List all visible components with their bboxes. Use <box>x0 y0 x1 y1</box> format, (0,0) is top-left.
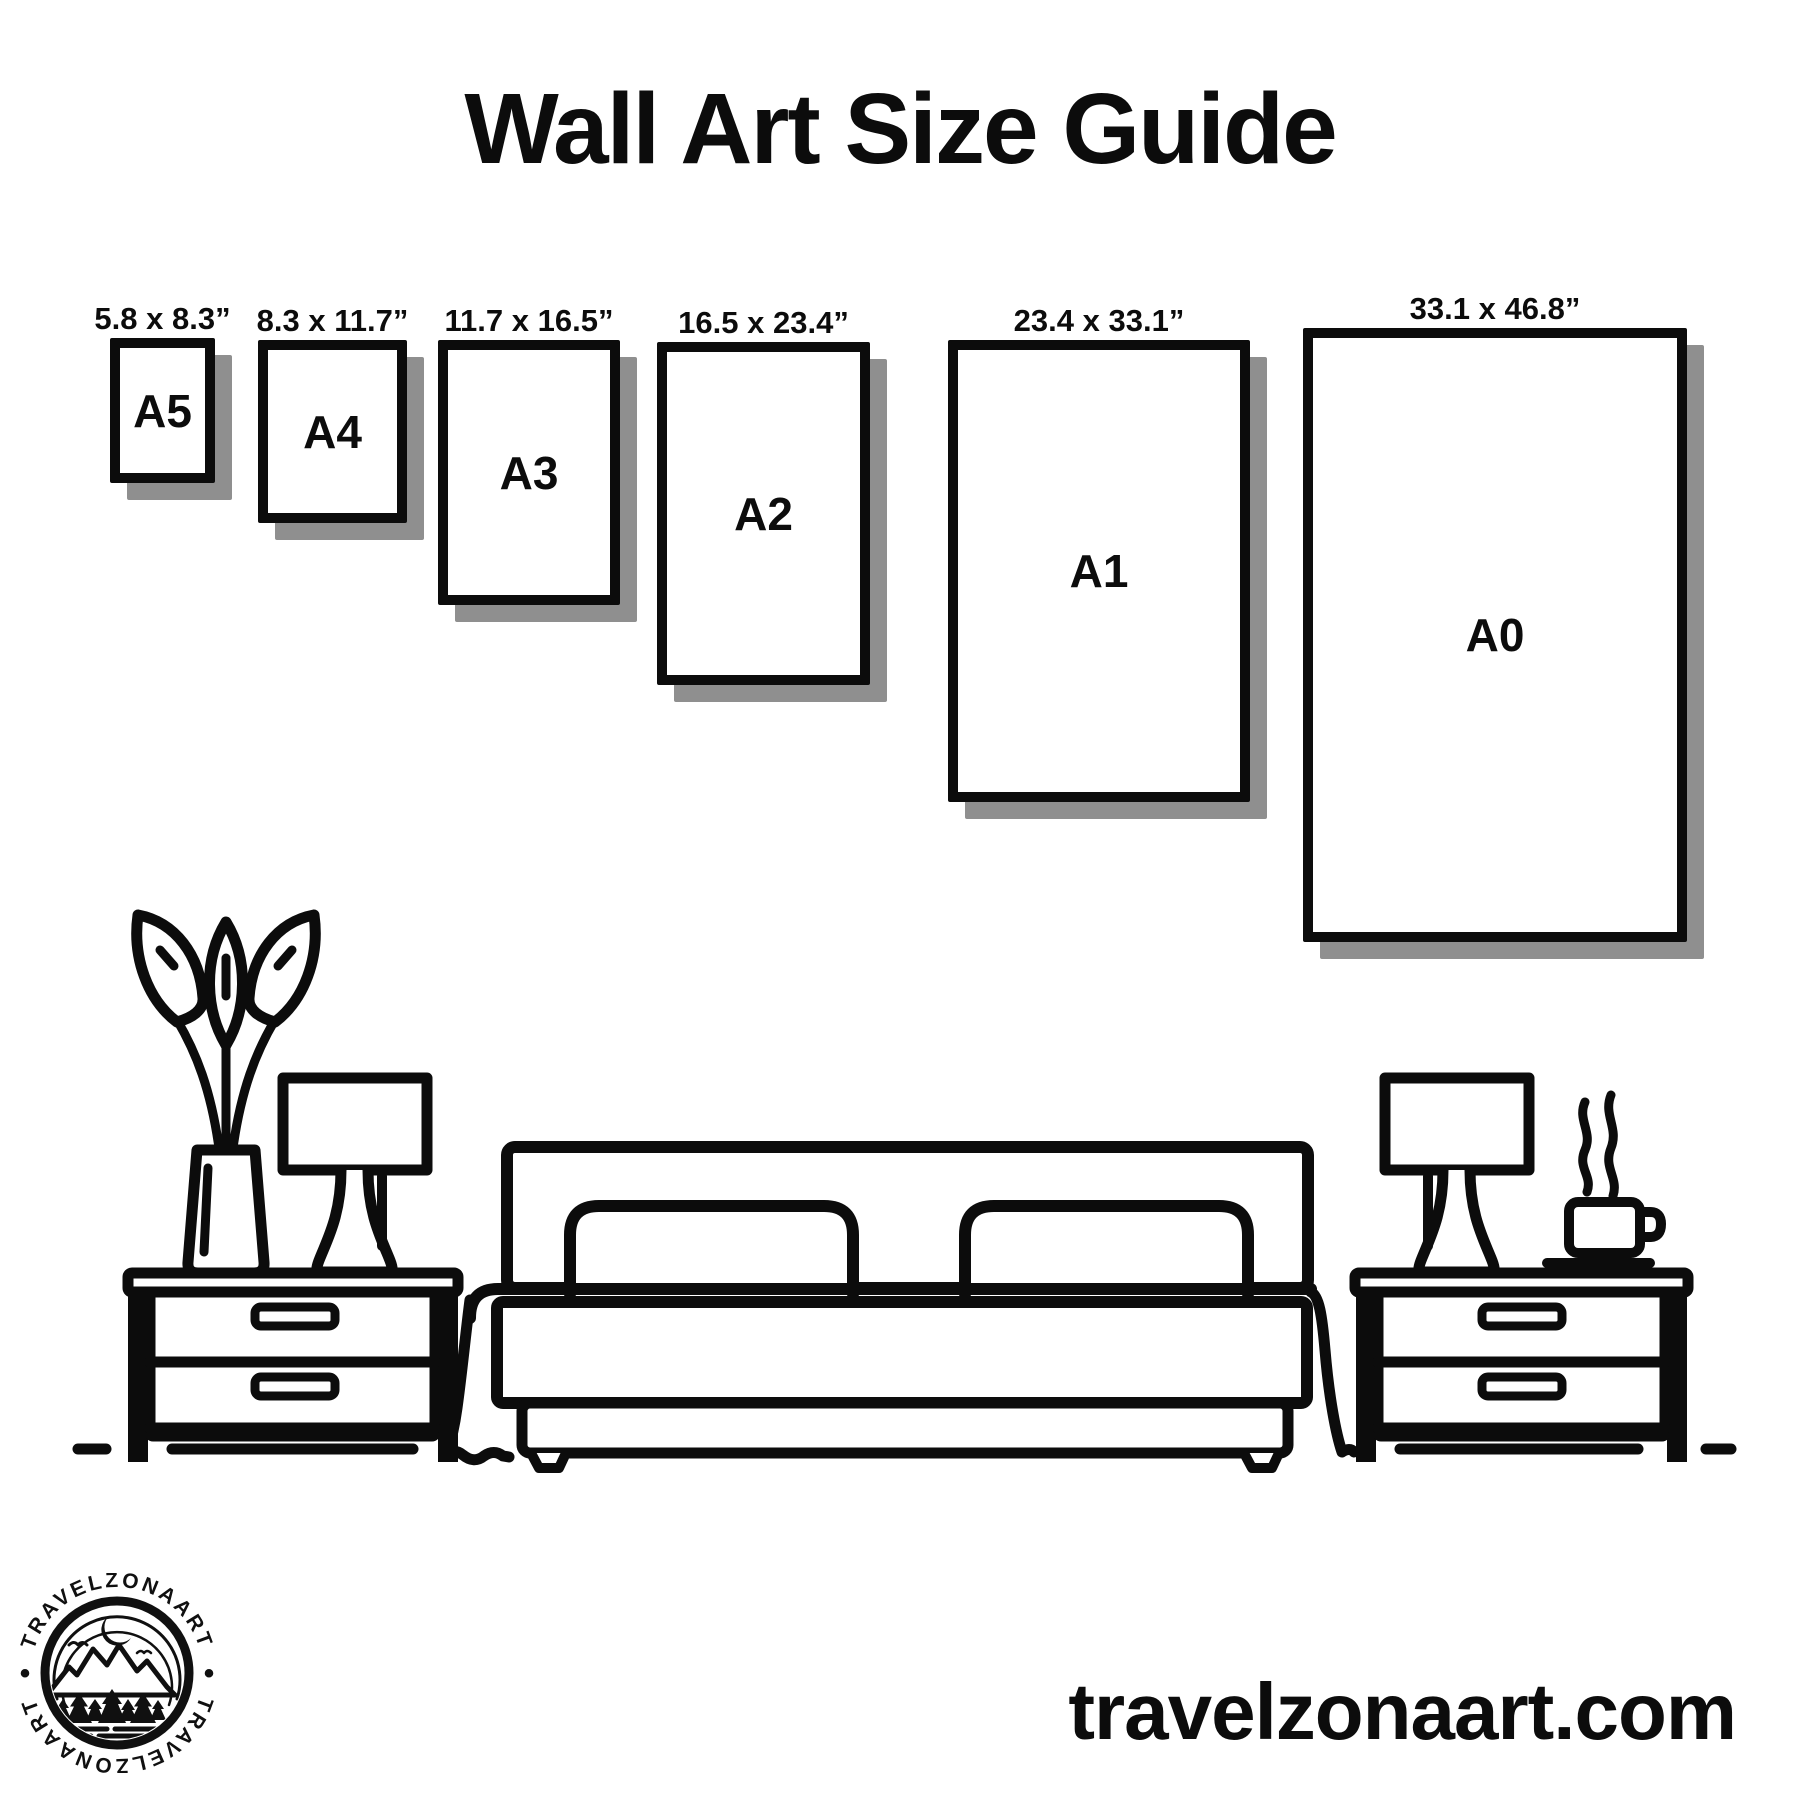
bed-leg-right <box>1244 1453 1279 1468</box>
flower-stem-right <box>233 1020 275 1148</box>
nightstand-left-handle-top <box>255 1307 335 1326</box>
wall-art-size-guide-poster: Wall Art Size Guide 5.8 x 8.3” A5 8.3 x … <box>0 0 1800 1800</box>
lamp-left-shade <box>283 1078 427 1170</box>
pillow-left <box>570 1206 853 1294</box>
bedroom-scene-illustration <box>0 0 1800 1800</box>
vase <box>188 1150 264 1273</box>
lamp-right <box>1385 1078 1529 1272</box>
bird-icon <box>69 1643 87 1646</box>
pillow-right <box>965 1206 1248 1294</box>
nightstand-left-handle-bottom <box>255 1377 335 1396</box>
website-url: travelzonaart.com <box>0 1666 1736 1758</box>
nightstand-right <box>1355 1273 1688 1462</box>
vase-highlight <box>204 1168 208 1252</box>
bird-icon <box>137 1651 151 1653</box>
nightstand-left <box>128 1273 458 1462</box>
nightstand-right-handle-top <box>1482 1307 1562 1326</box>
bed-leg-left <box>531 1453 566 1468</box>
steam-icon <box>1583 1102 1589 1192</box>
leaf-left <box>137 915 203 1022</box>
bed <box>447 1147 1354 1468</box>
lamp-left <box>283 1078 427 1272</box>
lamp-right-shade <box>1385 1078 1529 1170</box>
cup-body <box>1569 1202 1640 1253</box>
coffee-cup <box>1547 1095 1661 1263</box>
leaf-right <box>249 915 315 1022</box>
flower-stem-left <box>177 1020 219 1148</box>
steam-icon <box>1609 1095 1615 1196</box>
blanket-drape-right <box>1311 1292 1354 1452</box>
nightstand-right-handle-bottom <box>1482 1377 1562 1396</box>
blanket <box>497 1302 1307 1403</box>
bed-base <box>522 1403 1288 1453</box>
